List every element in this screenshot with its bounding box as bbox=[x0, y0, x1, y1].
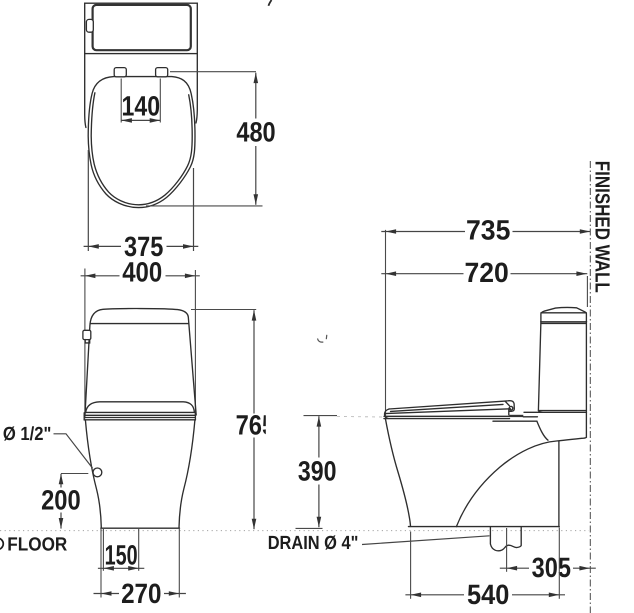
svg-text:FLOOR: FLOOR bbox=[7, 534, 67, 555]
svg-text:540: 540 bbox=[467, 579, 509, 610]
svg-text:140: 140 bbox=[122, 90, 161, 121]
svg-text:DRAIN Ø 4": DRAIN Ø 4" bbox=[268, 533, 359, 554]
svg-text:735: 735 bbox=[466, 214, 510, 245]
svg-text:480: 480 bbox=[236, 117, 275, 148]
svg-text:390: 390 bbox=[298, 455, 337, 486]
svg-text:765: 765 bbox=[236, 409, 276, 440]
svg-text:305: 305 bbox=[532, 552, 571, 583]
svg-text:200: 200 bbox=[41, 485, 81, 516]
svg-text:FINISHED WALL: FINISHED WALL bbox=[590, 161, 613, 293]
svg-text:720: 720 bbox=[464, 257, 508, 288]
svg-text:270: 270 bbox=[121, 578, 161, 609]
svg-text:Ø 1/2": Ø 1/2" bbox=[3, 424, 52, 445]
svg-text:150: 150 bbox=[105, 540, 138, 571]
svg-text:400: 400 bbox=[122, 257, 162, 288]
